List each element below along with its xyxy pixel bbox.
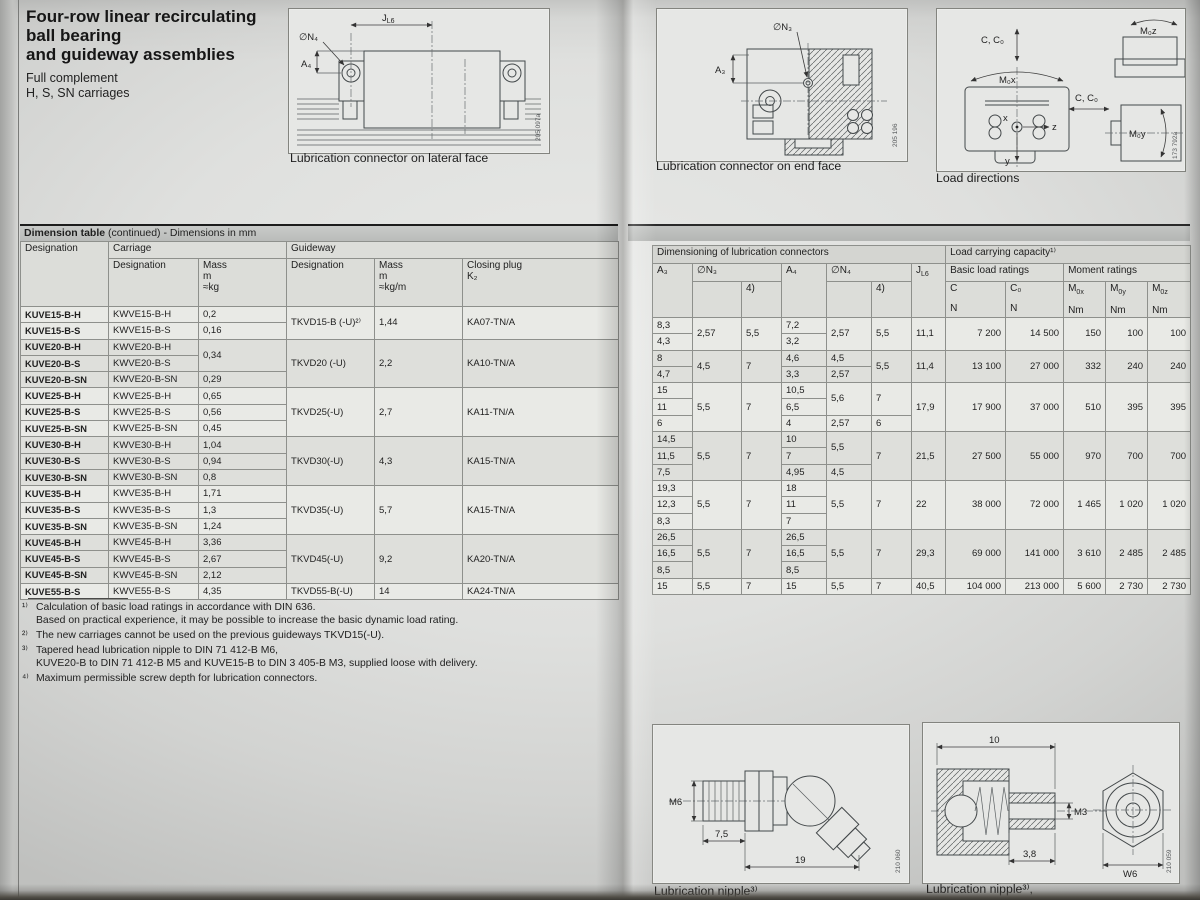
cell-a4: 7,2	[782, 318, 827, 334]
cell-n4d: 5,5	[872, 350, 912, 383]
cell-guideway-designation: TKVD25(-U)	[287, 388, 375, 437]
table-row: KUVE15-B-HKWVE15-B-H0,2TKVD15-B (-U)²⁾1,…	[21, 307, 619, 323]
header-m0z: M0zNm	[1148, 282, 1191, 318]
cell-n3d: 7	[742, 529, 782, 578]
dim-label-10: 10	[989, 735, 1000, 746]
cell-carriage-designation: KWVE30-B-SN	[109, 469, 199, 485]
table-row: 26,55,5726,55,5729,369 000141 0003 6102 …	[653, 529, 1191, 545]
footnote-2: ²⁾ The new carriages cannot be used on t…	[22, 629, 622, 642]
cell-c0: 37 000	[1006, 383, 1064, 432]
cell-m0y: 2 485	[1106, 529, 1148, 578]
cell-guideway-mass: 14	[375, 584, 463, 600]
catalog-spread: Four-row linear recirculating ball beari…	[0, 0, 1200, 900]
dim-label-3-8: 3,8	[1023, 849, 1036, 860]
cell-n3d: 7	[742, 480, 782, 529]
cell-designation: KUVE25-B-S	[21, 404, 109, 420]
cell-m0x: 150	[1064, 318, 1106, 351]
cell-c: 27 500	[946, 432, 1006, 481]
cell-closing-plug: KA20-TN/A	[463, 535, 619, 584]
cell-n4: 5,5	[827, 578, 872, 594]
cell-carriage-mass: 0,16	[199, 323, 287, 339]
figure-load-directions: C, C₀ M₀x x z y C, C₀ M₀z	[936, 8, 1186, 172]
cell-n4: 5,5	[827, 480, 872, 529]
cell-designation: KUVE45-B-SN	[21, 567, 109, 583]
subtitle-line: Full complement	[26, 71, 286, 86]
header-m0x: M0xNm	[1064, 282, 1106, 318]
table-row: KUVE20-B-HKWVE20-B-H0,34TKVD20 (-U)2,2KA…	[21, 339, 619, 355]
cell-a4: 3,3	[782, 366, 827, 382]
cell-carriage-designation: KWVE15-B-S	[109, 323, 199, 339]
cell-carriage-designation: KWVE20-B-SN	[109, 372, 199, 388]
cell-c: 17 900	[946, 383, 1006, 432]
cell-guideway-designation: TKVD20 (-U)	[287, 339, 375, 388]
cell-closing-plug: KA15-TN/A	[463, 486, 619, 535]
cell-carriage-mass: 1,3	[199, 502, 287, 518]
cell-carriage-mass: 0,29	[199, 372, 287, 388]
cell-c0: 213 000	[1006, 578, 1064, 594]
load-label-m0x: M₀x	[999, 75, 1016, 86]
header-carriage-mass: Massm≈kg	[199, 259, 287, 307]
cell-a4: 16,5	[782, 546, 827, 562]
cell-designation: KUVE25-B-H	[21, 388, 109, 404]
cell-a4: 10,5	[782, 383, 827, 399]
cell-a3: 4,7	[653, 366, 693, 382]
cell-c: 38 000	[946, 480, 1006, 529]
cell-carriage-designation: KWVE25-B-SN	[109, 421, 199, 437]
cell-guideway-mass: 2,7	[375, 388, 463, 437]
page-title: Four-row linear recirculating ball beari…	[26, 7, 286, 101]
cell-a3: 8	[653, 350, 693, 366]
cell-n3: 4,5	[693, 350, 742, 383]
cell-closing-plug: KA07-TN/A	[463, 307, 619, 340]
title-line: ball bearing	[26, 26, 286, 45]
axis-label-z: z	[1052, 122, 1057, 133]
cell-carriage-designation: KWVE45-B-SN	[109, 567, 199, 583]
cell-m0y: 395	[1106, 383, 1148, 432]
cell-designation: KUVE30-B-SN	[21, 469, 109, 485]
table-row: 19,35,57185,572238 00072 0001 4651 0201 …	[653, 480, 1191, 496]
header-n3-blank	[693, 282, 742, 318]
cell-m0z: 100	[1148, 318, 1191, 351]
dim-label-m6: M6	[669, 797, 682, 808]
cell-carriage-mass: 0,2	[199, 307, 287, 323]
cell-a4: 7	[782, 448, 827, 464]
cell-carriage-mass: 1,24	[199, 518, 287, 534]
cell-n4: 2,57	[827, 366, 872, 382]
header-c0: C₀N	[1006, 282, 1064, 318]
cell-guideway-mass: 2,2	[375, 339, 463, 388]
header-designation: Designation	[21, 242, 109, 307]
cell-n3: 5,5	[693, 578, 742, 594]
table-row: KUVE35-B-HKWVE35-B-H1,71TKVD35(-U)5,7KA1…	[21, 486, 619, 502]
header-a4: A₄	[782, 264, 827, 318]
header-carriage: Carriage	[109, 242, 287, 259]
cell-designation: KUVE15-B-S	[21, 323, 109, 339]
cell-m0y: 700	[1106, 432, 1148, 481]
cell-m0x: 510	[1064, 383, 1106, 432]
cell-n3d: 5,5	[742, 318, 782, 351]
cell-m0z: 2 485	[1148, 529, 1191, 578]
figure-lateral-face: JL6 ∅N₄ A₄ 205 097a	[288, 8, 550, 154]
header-n4-blank	[827, 282, 872, 318]
cell-guideway-designation: TKVD30(-U)	[287, 437, 375, 486]
dimension-table-bar: Dimension table (continued) - Dimensions…	[20, 224, 618, 241]
cell-a3: 15	[653, 383, 693, 399]
cell-guideway-designation: TKVD55-B(-U)	[287, 584, 375, 600]
dim-label-n3: ∅N₃	[773, 22, 792, 33]
cell-jl6: 11,4	[912, 350, 946, 383]
header-m0y: M0yNm	[1106, 282, 1148, 318]
cell-n3: 5,5	[693, 383, 742, 432]
caption-end-face: Lubrication connector on end face	[656, 159, 841, 173]
cell-guideway-designation: TKVD15-B (-U)²⁾	[287, 307, 375, 340]
cell-designation: KUVE35-B-S	[21, 502, 109, 518]
cell-a4: 4,95	[782, 464, 827, 480]
cell-c0: 14 500	[1006, 318, 1064, 351]
cell-carriage-mass: 2,67	[199, 551, 287, 567]
cell-n4: 2,57	[827, 318, 872, 351]
table-row: 8,32,575,57,22,575,511,17 20014 50015010…	[653, 318, 1191, 334]
cell-m0y: 100	[1106, 318, 1148, 351]
cell-jl6: 22	[912, 480, 946, 529]
cell-guideway-designation: TKVD45(-U)	[287, 535, 375, 584]
header-a3: A₃	[653, 264, 693, 318]
cell-designation: KUVE20-B-H	[21, 339, 109, 355]
cell-n4d: 7	[872, 480, 912, 529]
table-row: KUVE45-B-HKWVE45-B-H3,36TKVD45(-U)9,2KA2…	[21, 535, 619, 551]
cell-carriage-mass: 3,36	[199, 535, 287, 551]
cell-n3d: 7	[742, 432, 782, 481]
cell-m0x: 332	[1064, 350, 1106, 383]
dim-label-m3: M3	[1074, 807, 1087, 818]
cell-carriage-mass: 0,94	[199, 453, 287, 469]
load-label-m0y: M₀y	[1129, 129, 1146, 140]
cell-c0: 27 000	[1006, 350, 1064, 383]
cell-carriage-designation: KWVE20-B-S	[109, 355, 199, 371]
footnotes: ¹⁾ Calculation of basic load ratings in …	[22, 601, 622, 687]
band-dimensioning-lubrication: Dimensioning of lubrication connectors	[653, 246, 946, 264]
dim-label-7-5: 7,5	[715, 829, 728, 840]
cell-n4d: 6	[872, 415, 912, 431]
cell-carriage-designation: KWVE35-B-S	[109, 502, 199, 518]
cell-n4d: 7	[872, 578, 912, 594]
cell-jl6: 11,1	[912, 318, 946, 351]
cell-carriage-designation: KWVE35-B-SN	[109, 518, 199, 534]
footnote-4: ⁴⁾ Maximum permissible screw depth for l…	[22, 672, 622, 685]
figure-ref: 173 792a	[1172, 132, 1179, 159]
cell-c: 69 000	[946, 529, 1006, 578]
cell-a4: 11	[782, 497, 827, 513]
header-guideway: Guideway	[287, 242, 619, 259]
load-label-cc0-vertical: C, C₀	[981, 35, 1004, 46]
cell-n3: 5,5	[693, 432, 742, 481]
cell-a3: 26,5	[653, 529, 693, 545]
cell-c: 7 200	[946, 318, 1006, 351]
dimension-table-right: Dimensioning of lubrication connectors L…	[652, 245, 1191, 595]
cell-designation: KUVE20-B-SN	[21, 372, 109, 388]
dim-label-n4: ∅N₄	[299, 32, 318, 43]
header-c: CN	[946, 282, 1006, 318]
dim-label-w6: W6	[1123, 869, 1137, 880]
cell-guideway-mass: 1,44	[375, 307, 463, 340]
cell-carriage-designation: KWVE45-B-H	[109, 535, 199, 551]
cell-a3: 12,3	[653, 497, 693, 513]
cell-designation: KUVE30-B-S	[21, 453, 109, 469]
cell-carriage-designation: KWVE25-B-H	[109, 388, 199, 404]
cell-designation: KUVE15-B-H	[21, 307, 109, 323]
band-load-carrying-capacity: Load carrying capacity¹⁾	[946, 246, 1191, 264]
photo-left-edge	[0, 0, 19, 900]
cell-guideway-mass: 9,2	[375, 535, 463, 584]
cell-n4: 4,5	[827, 350, 872, 366]
cell-a3: 8,3	[653, 318, 693, 334]
cell-carriage-mass: 1,04	[199, 437, 287, 453]
title-line: and guideway assemblies	[26, 45, 286, 64]
cell-a4: 6,5	[782, 399, 827, 415]
subtitle-line: H, S, SN carriages	[26, 86, 286, 101]
dim-label-a3: A₃	[715, 65, 725, 76]
axis-label-x: x	[1003, 113, 1008, 124]
cell-n4d: 7	[872, 529, 912, 578]
cell-a3: 11,5	[653, 448, 693, 464]
figure-ref: 210 059	[1166, 849, 1173, 873]
cell-guideway-mass: 5,7	[375, 486, 463, 535]
cell-m0x: 970	[1064, 432, 1106, 481]
cell-m0y: 240	[1106, 350, 1148, 383]
cell-a4: 4	[782, 415, 827, 431]
title-line: Four-row linear recirculating	[26, 7, 286, 26]
cell-guideway-mass: 4,3	[375, 437, 463, 486]
cell-carriage-designation: KWVE15-B-H	[109, 307, 199, 323]
cell-carriage-mass: 0,34	[199, 339, 287, 372]
cell-designation: KUVE35-B-H	[21, 486, 109, 502]
cell-a4: 10	[782, 432, 827, 448]
cell-a3: 7,5	[653, 464, 693, 480]
cell-a3: 19,3	[653, 480, 693, 496]
cell-n4: 2,57	[827, 415, 872, 431]
cell-closing-plug: KA24-TN/A	[463, 584, 619, 600]
figure-ref: 210 060	[895, 849, 902, 873]
cell-carriage-mass: 2,12	[199, 567, 287, 583]
cell-a3: 14,5	[653, 432, 693, 448]
cell-m0x: 3 610	[1064, 529, 1106, 578]
table-row: KUVE30-B-HKWVE30-B-H1,04TKVD30(-U)4,3KA1…	[21, 437, 619, 453]
dim-label-a4: A₄	[301, 59, 311, 70]
footnote-3: ³⁾ Tapered head lubrication nipple to DI…	[22, 644, 622, 670]
header-moment-ratings: Moment ratings	[1064, 264, 1191, 282]
cell-n4d: 5,5	[872, 318, 912, 351]
cell-n4d: 7	[872, 383, 912, 416]
cell-a3: 15	[653, 578, 693, 594]
cell-a4: 3,2	[782, 334, 827, 350]
caption-lateral-face: Lubrication connector on lateral face	[290, 151, 488, 165]
cell-c0: 141 000	[1006, 529, 1064, 578]
cell-n4: 5,5	[827, 432, 872, 465]
cell-designation: KUVE45-B-H	[21, 535, 109, 551]
table-row: 155,57155,5740,5104 000213 0005 6002 730…	[653, 578, 1191, 594]
figure-ref: 205 097a	[535, 114, 542, 141]
table-row: 155,5710,55,6717,917 90037 000510395395	[653, 383, 1191, 399]
cell-designation: KUVE45-B-S	[21, 551, 109, 567]
cell-m0x: 5 600	[1064, 578, 1106, 594]
dimension-table-left: Designation Carriage Guideway Designatio…	[20, 241, 619, 600]
header-n4: ∅N₄	[827, 264, 912, 282]
figure-nipple-straight: 10 M3 3,8 W6 210 059	[922, 722, 1180, 884]
cell-n3: 2,57	[693, 318, 742, 351]
figure-end-face: ∅N₃ A₃ 205 196	[656, 8, 908, 162]
cell-a3: 4,3	[653, 334, 693, 350]
cell-closing-plug: KA15-TN/A	[463, 437, 619, 486]
caption-nipple-straight: Lubrication nipple³⁾,	[926, 882, 1033, 896]
cell-m0z: 395	[1148, 383, 1191, 432]
load-label-cc0-horizontal: C, C₀	[1075, 93, 1098, 104]
cell-n4: 5,5	[827, 529, 872, 578]
cell-c: 13 100	[946, 350, 1006, 383]
cell-n4: 5,6	[827, 383, 872, 416]
caption-load-directions: Load directions	[936, 171, 1019, 185]
cell-n3d: 7	[742, 578, 782, 594]
load-label-m0z: M₀z	[1140, 26, 1157, 37]
header-jl6: JL6	[912, 264, 946, 318]
cell-a3: 11	[653, 399, 693, 415]
cell-m0z: 2 730	[1148, 578, 1191, 594]
cell-carriage-designation: KWVE45-B-S	[109, 551, 199, 567]
cell-carriage-designation: KWVE20-B-H	[109, 339, 199, 355]
cell-c0: 55 000	[1006, 432, 1064, 481]
footnote-rule	[28, 598, 128, 599]
axis-label-y: y	[1005, 156, 1010, 167]
cell-n3d: 7	[742, 350, 782, 383]
cell-m0y: 1 020	[1106, 480, 1148, 529]
cell-a4: 26,5	[782, 529, 827, 545]
cell-carriage-designation: KWVE35-B-H	[109, 486, 199, 502]
cell-c0: 72 000	[1006, 480, 1064, 529]
cell-a3: 8,5	[653, 562, 693, 578]
table-row: 14,55,57105,5721,527 50055 000970700700	[653, 432, 1191, 448]
cell-a4: 15	[782, 578, 827, 594]
cell-a4: 4,6	[782, 350, 827, 366]
header-n4-note4: 4)	[872, 282, 912, 318]
cell-designation: KUVE35-B-SN	[21, 518, 109, 534]
cell-designation: KUVE25-B-SN	[21, 421, 109, 437]
cell-jl6: 21,5	[912, 432, 946, 481]
header-carriage-designation: Designation	[109, 259, 199, 307]
table-row: KUVE25-B-HKWVE25-B-H0,65TKVD25(-U)2,7KA1…	[21, 388, 619, 404]
cell-n3: 5,5	[693, 480, 742, 529]
dimension-table-bar-right	[628, 224, 1190, 241]
cell-a3: 6	[653, 415, 693, 431]
cell-designation: KUVE30-B-H	[21, 437, 109, 453]
cell-a4: 8,5	[782, 562, 827, 578]
caption-nipple-angled: Lubrication nipple³⁾	[654, 884, 758, 898]
header-closing-plug: Closing plugK₂	[463, 259, 619, 307]
cell-carriage-mass: 0,45	[199, 421, 287, 437]
cell-n3: 5,5	[693, 529, 742, 578]
cell-carriage-designation: KWVE25-B-S	[109, 404, 199, 420]
cell-guideway-designation: TKVD35(-U)	[287, 486, 375, 535]
cell-n3d: 7	[742, 383, 782, 432]
cell-n4d: 7	[872, 432, 912, 481]
cell-carriage-mass: 0,56	[199, 404, 287, 420]
cell-carriage-mass: 0,8	[199, 469, 287, 485]
cell-jl6: 29,3	[912, 529, 946, 578]
cell-closing-plug: KA11-TN/A	[463, 388, 619, 437]
figure-ref: 205 196	[892, 123, 899, 147]
cell-a4: 7	[782, 513, 827, 529]
cell-carriage-mass: 4,35	[199, 584, 287, 600]
cell-c: 104 000	[946, 578, 1006, 594]
cell-m0x: 1 465	[1064, 480, 1106, 529]
cell-n4: 4,5	[827, 464, 872, 480]
cell-m0z: 1 020	[1148, 480, 1191, 529]
cell-m0z: 700	[1148, 432, 1191, 481]
header-basic-load-ratings: Basic load ratings	[946, 264, 1064, 282]
cell-a3: 8,3	[653, 513, 693, 529]
header-guideway-mass: Massm≈kg/m	[375, 259, 463, 307]
cell-carriage-mass: 0,65	[199, 388, 287, 404]
footnote-1: ¹⁾ Calculation of basic load ratings in …	[22, 601, 622, 627]
cell-designation: KUVE20-B-S	[21, 355, 109, 371]
cell-carriage-mass: 1,71	[199, 486, 287, 502]
dim-label-jl6: JL6	[382, 13, 395, 25]
cell-jl6: 40,5	[912, 578, 946, 594]
header-guideway-designation: Designation	[287, 259, 375, 307]
cell-jl6: 17,9	[912, 383, 946, 432]
cell-closing-plug: KA10-TN/A	[463, 339, 619, 388]
header-n3: ∅N₃	[693, 264, 782, 282]
cell-m0z: 240	[1148, 350, 1191, 383]
cell-carriage-designation: KWVE30-B-H	[109, 437, 199, 453]
dim-label-19: 19	[795, 855, 806, 866]
figure-nipple-angled: M6 7,5 19 210 060	[652, 724, 910, 884]
cell-a3: 16,5	[653, 546, 693, 562]
cell-m0y: 2 730	[1106, 578, 1148, 594]
cell-carriage-designation: KWVE30-B-S	[109, 453, 199, 469]
cell-a4: 18	[782, 480, 827, 496]
header-n3-note4: 4)	[742, 282, 782, 318]
